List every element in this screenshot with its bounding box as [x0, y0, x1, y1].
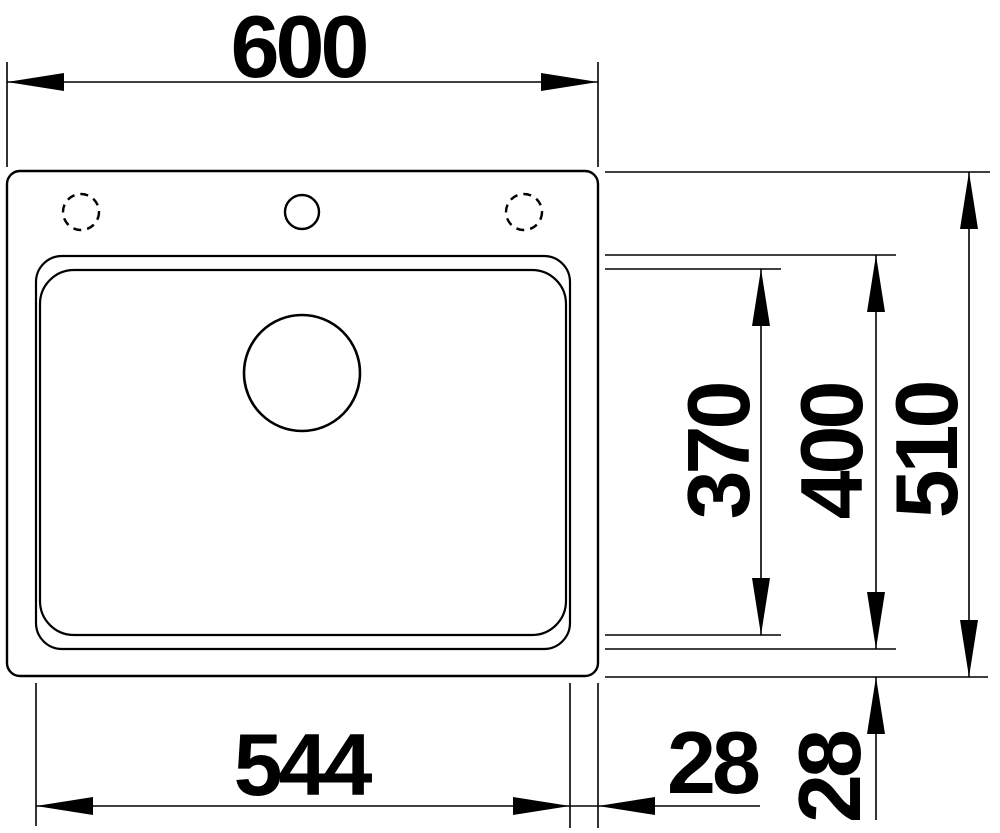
drain-hole	[244, 315, 360, 431]
dimension-rim-bottom: 28	[780, 677, 885, 823]
faucet-hole-center	[285, 195, 319, 229]
arrowhead-left	[36, 797, 93, 815]
arrowhead-up	[867, 677, 885, 734]
sink-body	[7, 171, 598, 676]
arrowhead-rim-right	[598, 797, 655, 815]
faucet-hole-right-dashed	[506, 194, 542, 230]
arrowhead-top	[867, 255, 885, 312]
bowl-inner-outline	[40, 270, 566, 635]
dimension-bowl-inner-depth: 370	[605, 269, 781, 635]
dim-label-rim-right: 28	[667, 713, 759, 812]
arrowhead-top	[960, 172, 978, 229]
dim-label-overall-depth: 510	[877, 383, 976, 519]
dim-label-rim-bottom: 28	[780, 731, 879, 823]
arrowhead-bottom	[960, 620, 978, 677]
arrowhead-left	[7, 73, 64, 91]
dim-label-bowl-width: 544	[234, 715, 373, 814]
dim-label-bowl-outer-depth: 400	[782, 384, 881, 520]
dim-label-bowl-inner-depth: 370	[669, 384, 768, 520]
sink-technical-drawing-page: 600 510 400 370	[0, 0, 1000, 833]
arrowhead-right	[541, 73, 598, 91]
sink-top-view-drawing: 600 510 400 370	[0, 0, 1000, 833]
sink-outline	[7, 171, 598, 676]
arrowhead-bottom	[867, 592, 885, 649]
arrowhead-right	[513, 797, 570, 815]
dimension-top-width: 600	[7, 0, 598, 167]
arrowhead-bottom	[752, 578, 770, 635]
faucet-hole-left-dashed	[63, 194, 99, 230]
dimension-bowl-width: 544 28	[36, 683, 760, 828]
arrowhead-top	[752, 269, 770, 326]
dim-label-top-width: 600	[231, 0, 367, 96]
